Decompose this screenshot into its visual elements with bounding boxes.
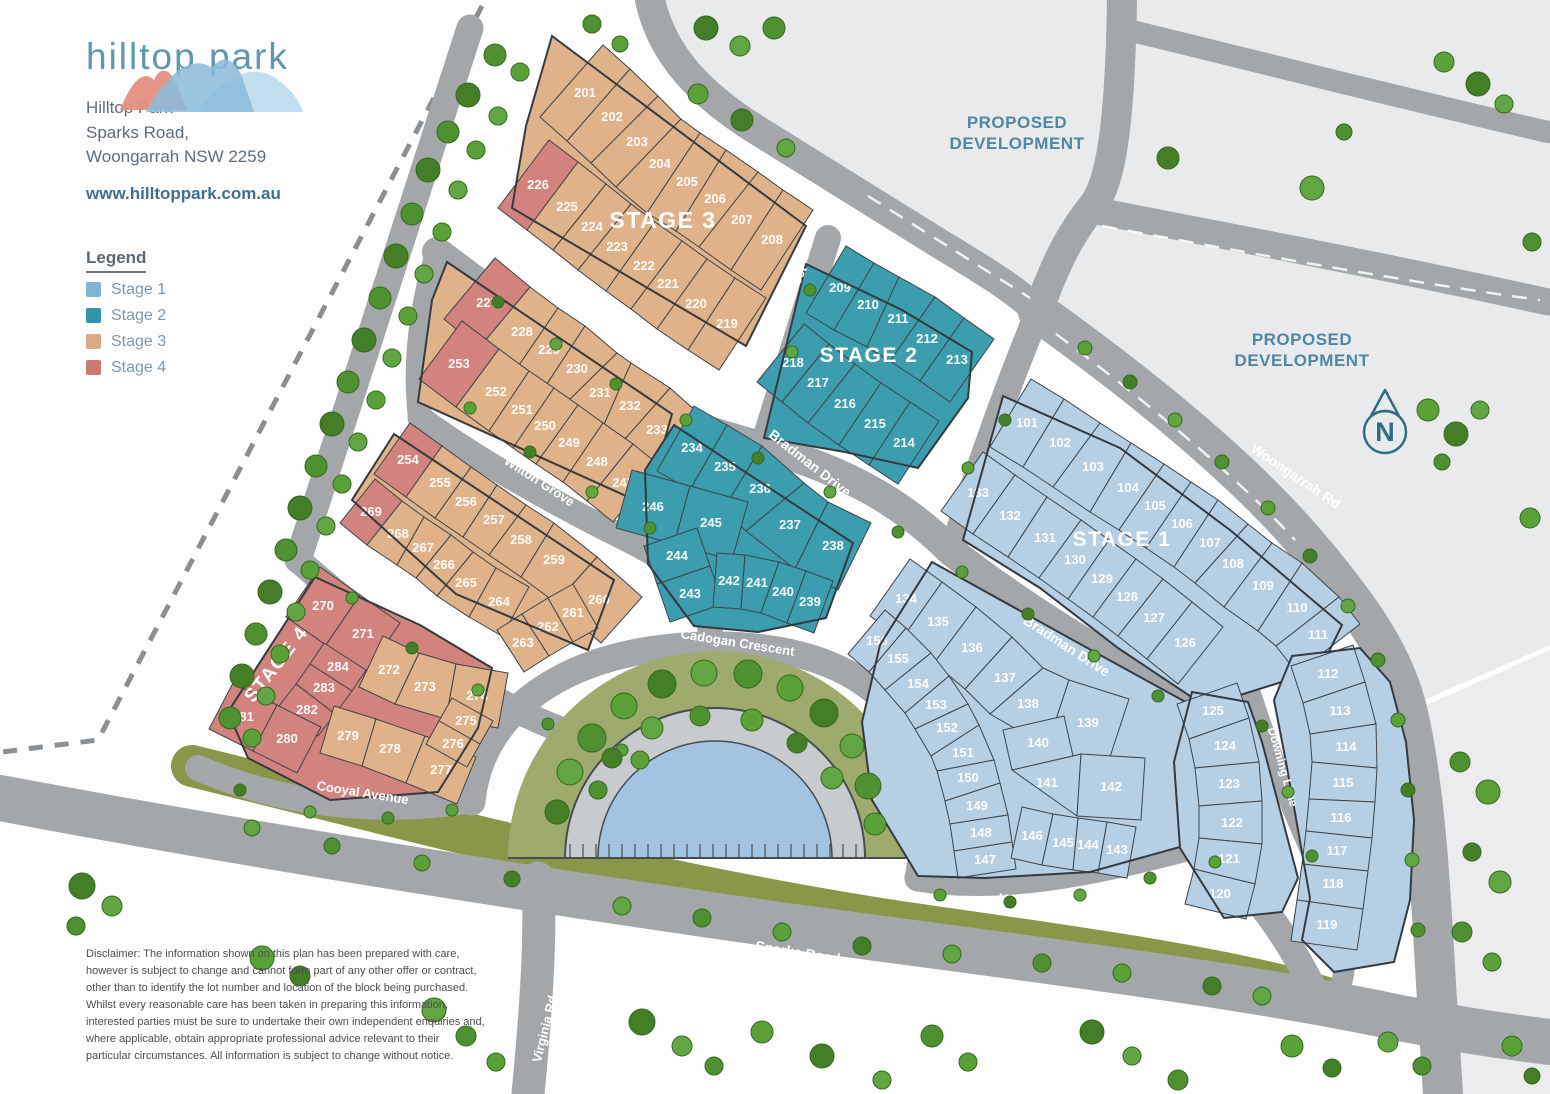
tree-icon bbox=[234, 784, 246, 796]
tree-icon bbox=[853, 937, 871, 955]
lot-number-248: 248 bbox=[586, 454, 608, 469]
stage-label-stage-2: STAGE 2 bbox=[820, 344, 919, 367]
tree-icon bbox=[1411, 923, 1425, 937]
lot-number-150: 150 bbox=[957, 770, 979, 785]
lot-number-243: 243 bbox=[679, 586, 701, 601]
lot-number-136: 136 bbox=[961, 640, 983, 655]
tree-icon bbox=[219, 707, 241, 729]
lot-number-212: 212 bbox=[916, 331, 938, 346]
tree-icon bbox=[1253, 987, 1271, 1005]
lot-number-249: 249 bbox=[558, 435, 580, 450]
tree-icon bbox=[1168, 413, 1182, 427]
lot-number-119: 119 bbox=[1317, 917, 1338, 932]
legend-label: Stage 4 bbox=[111, 359, 166, 377]
lot-number-145: 145 bbox=[1052, 835, 1074, 850]
lot-number-233: 233 bbox=[646, 422, 668, 437]
tree-icon bbox=[320, 412, 344, 436]
tree-icon bbox=[1413, 1057, 1431, 1075]
legend-swatch-icon bbox=[86, 360, 101, 375]
lot-number-223: 223 bbox=[606, 239, 628, 254]
lot-number-125: 125 bbox=[1202, 703, 1224, 718]
lot-number-267: 267 bbox=[412, 540, 434, 555]
legend-item-stage-1: Stage 1 bbox=[86, 281, 416, 299]
tree-icon bbox=[1256, 720, 1268, 732]
tree-icon bbox=[921, 1025, 943, 1047]
tree-icon bbox=[1144, 872, 1156, 884]
tree-icon bbox=[1004, 896, 1016, 908]
tree-icon bbox=[612, 36, 628, 52]
tree-icon bbox=[317, 517, 335, 535]
tree-icon bbox=[1523, 233, 1541, 251]
tree-icon bbox=[804, 284, 816, 296]
lot-number-104: 104 bbox=[1117, 480, 1139, 495]
lot-number-225: 225 bbox=[556, 199, 578, 214]
lot-number-265: 265 bbox=[455, 575, 477, 590]
tree-icon bbox=[734, 660, 762, 688]
tree-icon bbox=[1450, 752, 1470, 772]
stage-label-stage-1: STAGE 1 bbox=[1073, 528, 1172, 551]
lot-number-232: 232 bbox=[619, 398, 641, 413]
lot-number-278: 278 bbox=[379, 741, 401, 756]
legend-label: Stage 1 bbox=[111, 281, 166, 299]
legend: Legend Stage 1Stage 2Stage 3Stage 4 bbox=[86, 248, 416, 377]
tree-icon bbox=[1123, 375, 1137, 389]
tree-icon bbox=[349, 433, 367, 451]
tree-icon bbox=[1341, 599, 1355, 613]
lot-number-139: 139 bbox=[1077, 715, 1099, 730]
tree-icon bbox=[999, 414, 1011, 426]
tree-icon bbox=[275, 539, 297, 561]
lot-number-141: 141 bbox=[1036, 775, 1058, 790]
lot-number-214: 214 bbox=[893, 435, 915, 450]
tree-icon bbox=[244, 820, 260, 836]
tree-icon bbox=[484, 44, 506, 66]
lot-number-154: 154 bbox=[907, 676, 929, 691]
lot-number-106: 106 bbox=[1171, 516, 1193, 531]
stage-label-stage-3: STAGE 3 bbox=[609, 207, 716, 233]
lot-number-259: 259 bbox=[543, 552, 565, 567]
tree-icon bbox=[602, 748, 622, 768]
tree-icon bbox=[382, 812, 394, 824]
tree-icon bbox=[751, 1021, 773, 1043]
tree-icon bbox=[864, 813, 886, 835]
lot-number-201: 201 bbox=[574, 85, 596, 100]
lot-number-280: 280 bbox=[276, 731, 298, 746]
lot-number-224: 224 bbox=[581, 219, 603, 234]
tree-icon bbox=[730, 36, 750, 56]
tree-icon bbox=[1323, 1059, 1341, 1077]
tree-icon bbox=[690, 706, 710, 726]
tree-icon bbox=[1471, 401, 1489, 419]
lot-number-226: 226 bbox=[527, 177, 549, 192]
lot-number-263: 263 bbox=[512, 635, 534, 650]
lot-number-103: 103 bbox=[1082, 459, 1104, 474]
tree-icon bbox=[956, 566, 968, 578]
lot-number-238: 238 bbox=[822, 538, 844, 553]
tree-icon bbox=[1078, 341, 1092, 355]
tree-icon bbox=[67, 917, 85, 935]
lot-number-123: 123 bbox=[1218, 776, 1240, 791]
tree-icon bbox=[680, 414, 692, 426]
tree-icon bbox=[1261, 501, 1275, 515]
tree-icon bbox=[414, 855, 430, 871]
tree-icon bbox=[583, 15, 601, 33]
lot-number-148: 148 bbox=[970, 825, 992, 840]
lot-number-270: 270 bbox=[312, 598, 334, 613]
lot-number-258: 258 bbox=[510, 532, 532, 547]
tree-icon bbox=[648, 670, 676, 698]
tree-icon bbox=[1113, 964, 1131, 982]
lot-number-135: 135 bbox=[927, 614, 949, 629]
tree-icon bbox=[550, 338, 562, 350]
lot-number-211: 211 bbox=[888, 311, 909, 326]
tree-icon bbox=[1434, 454, 1450, 470]
tree-icon bbox=[644, 522, 656, 534]
tree-icon bbox=[511, 63, 529, 81]
tree-icon bbox=[1452, 922, 1472, 942]
tree-icon bbox=[69, 873, 95, 899]
tree-icon bbox=[456, 83, 480, 107]
tree-icon bbox=[367, 391, 385, 409]
lot-number-137: 137 bbox=[994, 670, 1016, 685]
tree-icon bbox=[1476, 780, 1500, 804]
tree-icon bbox=[557, 759, 583, 785]
legend-swatch-icon bbox=[86, 334, 101, 349]
tree-icon bbox=[1168, 1070, 1188, 1090]
tree-icon bbox=[472, 684, 484, 696]
tree-icon bbox=[1088, 650, 1100, 662]
lot-number-132: 132 bbox=[999, 508, 1021, 523]
tree-icon bbox=[1336, 124, 1352, 140]
tree-icon bbox=[416, 158, 440, 182]
lot-number-117: 117 bbox=[1327, 843, 1348, 858]
lot-number-262: 262 bbox=[537, 619, 559, 634]
tree-icon bbox=[731, 109, 753, 131]
tree-icon bbox=[810, 1044, 834, 1068]
lot-number-204: 204 bbox=[649, 156, 671, 171]
tree-icon bbox=[1502, 1036, 1522, 1056]
lot-number-256: 256 bbox=[455, 494, 477, 509]
tree-icon bbox=[688, 84, 708, 104]
tree-icon bbox=[258, 580, 282, 604]
lot-number-108: 108 bbox=[1222, 556, 1244, 571]
tree-icon bbox=[437, 121, 459, 143]
lot-number-142: 142 bbox=[1100, 779, 1122, 794]
lot-number-241: 241 bbox=[746, 575, 768, 590]
tree-icon bbox=[672, 1036, 692, 1056]
lot-number-230: 230 bbox=[566, 361, 588, 376]
lot-number-128: 128 bbox=[1116, 589, 1138, 604]
tree-icon bbox=[873, 1071, 891, 1089]
tree-icon bbox=[446, 804, 458, 816]
lot-number-264: 264 bbox=[488, 594, 510, 609]
tree-icon bbox=[613, 897, 631, 915]
tree-icon bbox=[287, 603, 305, 621]
lot-number-244: 244 bbox=[666, 548, 688, 563]
tree-icon bbox=[1203, 977, 1221, 995]
tree-icon bbox=[586, 486, 598, 498]
tree-icon bbox=[786, 346, 798, 358]
tree-icon bbox=[1401, 783, 1415, 797]
tree-icon bbox=[578, 724, 606, 752]
lot-number-272: 272 bbox=[378, 662, 400, 677]
lot-number-131: 131 bbox=[1034, 530, 1056, 545]
lot-number-114: 114 bbox=[1336, 739, 1358, 754]
north-label: N bbox=[1375, 417, 1395, 447]
lot-number-273: 273 bbox=[414, 679, 436, 694]
tree-icon bbox=[610, 378, 622, 390]
lot-number-231: 231 bbox=[589, 385, 611, 400]
lot-number-206: 206 bbox=[704, 191, 726, 206]
tree-icon bbox=[1524, 1068, 1540, 1084]
lot-number-138: 138 bbox=[1017, 696, 1039, 711]
stage-1-block-7: 112113114115116117118119 bbox=[1274, 645, 1414, 972]
lot-number-255: 255 bbox=[429, 475, 451, 490]
tree-icon bbox=[691, 660, 717, 686]
tree-icon bbox=[821, 767, 843, 789]
lot-number-271: 271 bbox=[352, 626, 374, 641]
tree-icon bbox=[787, 733, 807, 753]
tree-icon bbox=[271, 645, 289, 663]
tree-icon bbox=[773, 923, 791, 941]
lot-number-242: 242 bbox=[718, 573, 740, 588]
lot-number-213: 213 bbox=[946, 352, 968, 367]
lot-number-205: 205 bbox=[676, 174, 698, 189]
lot-number-101: 101 bbox=[1016, 415, 1038, 430]
lot-number-228: 228 bbox=[511, 324, 533, 339]
lot-number-147: 147 bbox=[974, 852, 996, 867]
tree-icon bbox=[1215, 455, 1229, 469]
lot-number-207: 207 bbox=[731, 212, 753, 227]
lot-number-240: 240 bbox=[772, 584, 794, 599]
legend-title: Legend bbox=[86, 248, 146, 273]
lot-number-113: 113 bbox=[1330, 703, 1351, 718]
legend-item-stage-2: Stage 2 bbox=[86, 307, 416, 325]
lot-number-203: 203 bbox=[626, 134, 648, 149]
tree-icon bbox=[1152, 690, 1164, 702]
tree-icon bbox=[810, 699, 838, 727]
tree-icon bbox=[1080, 1020, 1104, 1044]
tree-icon bbox=[1444, 422, 1468, 446]
tree-icon bbox=[1074, 889, 1086, 901]
legend-item-stage-3: Stage 3 bbox=[86, 333, 416, 351]
lot-number-275: 275 bbox=[455, 713, 477, 728]
lot-number-151: 151 bbox=[952, 745, 974, 760]
lot-number-143: 143 bbox=[1106, 842, 1128, 857]
tree-icon bbox=[1434, 52, 1454, 72]
tree-icon bbox=[542, 718, 554, 730]
tree-icon bbox=[589, 781, 607, 799]
lot-number-208: 208 bbox=[761, 232, 783, 247]
tree-icon bbox=[487, 1053, 505, 1071]
tree-icon bbox=[504, 871, 520, 887]
address-line-3: Woongarrah NSW 2259 bbox=[86, 145, 416, 170]
tree-icon bbox=[1306, 850, 1318, 862]
lot-number-107: 107 bbox=[1199, 535, 1221, 550]
lot-number-102: 102 bbox=[1049, 435, 1071, 450]
tree-icon bbox=[305, 455, 327, 477]
lot-number-245: 245 bbox=[700, 515, 722, 530]
lot-number-252: 252 bbox=[485, 384, 507, 399]
tree-icon bbox=[1405, 853, 1419, 867]
lot-number-155: 155 bbox=[887, 651, 909, 666]
lot-number-239: 239 bbox=[799, 594, 821, 609]
tree-icon bbox=[694, 16, 718, 40]
tree-icon bbox=[1371, 653, 1385, 667]
tree-icon bbox=[705, 1057, 723, 1075]
tree-icon bbox=[1489, 871, 1511, 893]
lot-number-129: 129 bbox=[1091, 571, 1113, 586]
tree-icon bbox=[892, 526, 904, 538]
tree-icon bbox=[346, 592, 358, 604]
lot-number-127: 127 bbox=[1143, 610, 1165, 625]
tree-icon bbox=[1300, 176, 1324, 200]
lot-number-140: 140 bbox=[1027, 735, 1049, 750]
lot-number-236: 236 bbox=[749, 481, 771, 496]
tree-icon bbox=[824, 486, 836, 498]
lot-number-257: 257 bbox=[483, 512, 505, 527]
lot-number-237: 237 bbox=[779, 517, 801, 532]
lot-number-112: 112 bbox=[1318, 666, 1339, 681]
lot-number-216: 216 bbox=[834, 396, 856, 411]
tree-icon bbox=[415, 265, 433, 283]
tree-icon bbox=[1022, 608, 1034, 620]
lot-number-209: 209 bbox=[829, 280, 851, 295]
tree-icon bbox=[1303, 549, 1317, 563]
legend-label: Stage 3 bbox=[111, 333, 166, 351]
tree-icon bbox=[257, 687, 275, 705]
tree-icon bbox=[962, 462, 974, 474]
lot-number-111: 111 bbox=[1308, 627, 1328, 642]
tree-icon bbox=[1282, 786, 1294, 798]
tree-icon bbox=[631, 751, 649, 769]
lot-number-217: 217 bbox=[807, 375, 829, 390]
tree-icon bbox=[333, 475, 351, 493]
lot-number-110: 110 bbox=[1287, 600, 1308, 615]
tree-icon bbox=[1123, 1047, 1141, 1065]
lot-number-156: 156 bbox=[866, 633, 888, 648]
lot-number-261: 261 bbox=[562, 605, 584, 620]
lot-number-222: 222 bbox=[633, 258, 655, 273]
lot-number-254: 254 bbox=[397, 452, 419, 467]
tree-icon bbox=[324, 838, 340, 854]
info-panel: hilltop park Hilltop Park Sparks Road, W… bbox=[86, 40, 416, 377]
lot-number-279: 279 bbox=[337, 728, 359, 743]
tree-icon bbox=[777, 675, 803, 701]
tree-icon bbox=[406, 642, 418, 654]
tree-icon bbox=[102, 896, 122, 916]
lot-number-250: 250 bbox=[534, 418, 556, 433]
tree-icon bbox=[741, 709, 763, 731]
lot-number-144: 144 bbox=[1077, 837, 1099, 852]
lot-number-149: 149 bbox=[966, 798, 988, 813]
tree-icon bbox=[243, 729, 261, 747]
lot-number-116: 116 bbox=[1331, 810, 1352, 825]
tree-icon bbox=[1417, 399, 1439, 421]
lot-number-121: 121 bbox=[1218, 851, 1240, 866]
tree-icon bbox=[288, 496, 312, 520]
tree-icon bbox=[959, 1053, 977, 1071]
lot-number-253: 253 bbox=[448, 356, 470, 371]
lot-number-118: 118 bbox=[1323, 876, 1344, 891]
lot-number-215: 215 bbox=[864, 416, 886, 431]
lot-number-153: 153 bbox=[925, 697, 947, 712]
lot-number-283: 283 bbox=[313, 680, 335, 695]
tree-icon bbox=[524, 446, 536, 458]
lot-number-221: 221 bbox=[657, 276, 679, 291]
lot-number-122: 122 bbox=[1221, 815, 1243, 830]
tree-icon bbox=[1520, 508, 1540, 528]
lot-number-130: 130 bbox=[1064, 552, 1086, 567]
tree-icon bbox=[492, 296, 504, 308]
tree-icon bbox=[934, 889, 946, 901]
tree-icon bbox=[467, 141, 485, 159]
tree-icon bbox=[1378, 1032, 1398, 1052]
tree-icon bbox=[840, 734, 864, 758]
lot-number-109: 109 bbox=[1252, 578, 1274, 593]
tree-icon bbox=[1466, 72, 1490, 96]
tree-icon bbox=[304, 806, 316, 818]
legend-swatch-icon bbox=[86, 308, 101, 323]
tree-icon bbox=[449, 181, 467, 199]
tree-icon bbox=[611, 693, 637, 719]
legend-items: Stage 1Stage 2Stage 3Stage 4 bbox=[86, 281, 416, 377]
tree-icon bbox=[1281, 1035, 1303, 1057]
tree-icon bbox=[943, 945, 961, 963]
lot-number-251: 251 bbox=[511, 402, 533, 417]
tree-icon bbox=[693, 909, 711, 927]
lot-number-124: 124 bbox=[1214, 738, 1236, 753]
lot-number-152: 152 bbox=[936, 720, 958, 735]
hilltop-park-logo-icon bbox=[102, 40, 322, 120]
tree-icon bbox=[641, 717, 663, 739]
hilltop-park-masterplan: 2012022032042052062072082262252242232222… bbox=[0, 0, 1550, 1094]
lot-number-105: 105 bbox=[1144, 498, 1166, 513]
tree-icon bbox=[464, 402, 476, 414]
tree-icon bbox=[1463, 843, 1481, 861]
lot-number-284: 284 bbox=[327, 659, 349, 674]
legend-label: Stage 2 bbox=[111, 307, 166, 325]
legend-item-stage-4: Stage 4 bbox=[86, 359, 416, 377]
tree-icon bbox=[752, 452, 764, 464]
tree-icon bbox=[1033, 954, 1051, 972]
lot-number-276: 276 bbox=[442, 736, 464, 751]
tree-icon bbox=[230, 664, 254, 688]
legend-swatch-icon bbox=[86, 282, 101, 297]
lot-number-126: 126 bbox=[1174, 635, 1196, 650]
disclaimer-text: Disclaimer: The information shown on thi… bbox=[86, 946, 486, 1065]
tree-icon bbox=[855, 773, 881, 799]
lot-number-202: 202 bbox=[601, 109, 623, 124]
tree-icon bbox=[1209, 856, 1221, 868]
tree-icon bbox=[489, 107, 507, 125]
tree-icon bbox=[545, 800, 569, 824]
tree-icon bbox=[245, 623, 267, 645]
tree-icon bbox=[1391, 713, 1405, 727]
lot-number-146: 146 bbox=[1021, 828, 1043, 843]
address-line-2: Sparks Road, bbox=[86, 121, 416, 146]
lot-number-235: 235 bbox=[714, 459, 736, 474]
tree-icon bbox=[1157, 147, 1179, 169]
tree-icon bbox=[763, 17, 785, 39]
tree-icon bbox=[1495, 95, 1513, 113]
lot-number-210: 210 bbox=[857, 297, 879, 312]
tree-icon bbox=[433, 223, 451, 241]
lot-number-115: 115 bbox=[1333, 775, 1354, 790]
tree-icon bbox=[777, 139, 795, 157]
lot-number-282: 282 bbox=[296, 702, 318, 717]
lot-number-219: 219 bbox=[716, 316, 738, 331]
